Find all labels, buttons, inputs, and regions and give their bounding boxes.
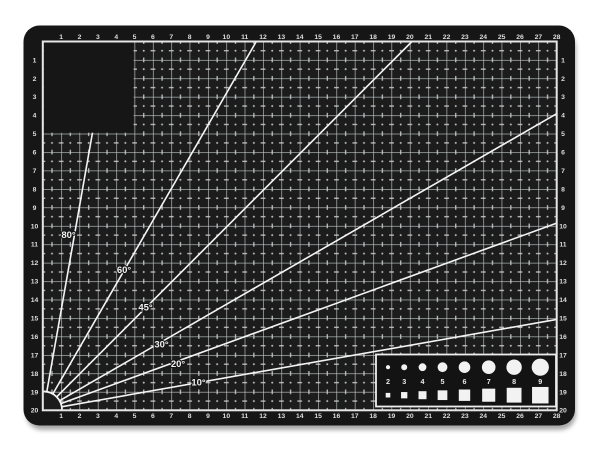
svg-text:12: 12 <box>31 260 39 267</box>
svg-text:7: 7 <box>487 377 491 386</box>
svg-text:15: 15 <box>31 316 39 323</box>
svg-text:4: 4 <box>421 377 425 386</box>
svg-text:27: 27 <box>535 34 543 41</box>
svg-text:3: 3 <box>402 377 406 386</box>
svg-text:14: 14 <box>296 34 304 41</box>
svg-text:17: 17 <box>559 352 567 359</box>
svg-text:20: 20 <box>406 413 414 420</box>
svg-text:23: 23 <box>461 34 469 41</box>
svg-text:27: 27 <box>535 413 543 420</box>
svg-text:16: 16 <box>559 334 567 341</box>
svg-text:6: 6 <box>151 413 155 420</box>
svg-text:2: 2 <box>78 34 82 41</box>
svg-text:9: 9 <box>561 205 565 212</box>
svg-text:8: 8 <box>512 377 516 386</box>
svg-text:28: 28 <box>553 34 561 41</box>
svg-text:10: 10 <box>31 223 39 230</box>
svg-text:10: 10 <box>223 413 231 420</box>
svg-text:19: 19 <box>559 389 567 396</box>
svg-text:2: 2 <box>561 76 565 83</box>
svg-text:12: 12 <box>259 34 267 41</box>
svg-text:4: 4 <box>33 113 37 120</box>
svg-text:7: 7 <box>169 413 173 420</box>
svg-text:11: 11 <box>241 34 248 41</box>
svg-text:18: 18 <box>31 371 39 378</box>
svg-text:21: 21 <box>424 413 432 420</box>
svg-text:5: 5 <box>133 413 137 420</box>
svg-text:17: 17 <box>351 413 359 420</box>
svg-text:18: 18 <box>369 413 377 420</box>
svg-text:11: 11 <box>31 242 38 249</box>
svg-text:13: 13 <box>278 34 286 41</box>
svg-text:20: 20 <box>559 408 567 415</box>
svg-text:21: 21 <box>424 34 432 41</box>
svg-text:11: 11 <box>559 242 566 249</box>
svg-text:8: 8 <box>188 34 192 41</box>
svg-text:25: 25 <box>498 413 506 420</box>
svg-text:17: 17 <box>351 34 359 41</box>
svg-text:6: 6 <box>33 150 37 157</box>
svg-text:19: 19 <box>388 413 396 420</box>
svg-text:30°: 30° <box>154 340 169 351</box>
svg-text:4: 4 <box>561 113 565 120</box>
svg-text:6: 6 <box>463 377 467 386</box>
svg-text:8: 8 <box>188 413 192 420</box>
svg-text:23: 23 <box>461 413 469 420</box>
svg-text:16: 16 <box>333 34 341 41</box>
svg-text:6: 6 <box>561 150 565 157</box>
svg-text:5: 5 <box>33 131 37 138</box>
svg-text:14: 14 <box>559 297 567 304</box>
svg-text:24: 24 <box>480 413 488 420</box>
svg-text:19: 19 <box>31 389 39 396</box>
svg-text:20: 20 <box>31 408 39 415</box>
svg-text:18: 18 <box>369 34 377 41</box>
svg-text:8: 8 <box>561 186 565 193</box>
svg-text:9: 9 <box>33 205 37 212</box>
svg-text:6: 6 <box>151 34 155 41</box>
svg-text:16: 16 <box>31 334 39 341</box>
svg-text:13: 13 <box>31 279 39 286</box>
svg-text:19: 19 <box>388 34 396 41</box>
svg-text:60°: 60° <box>117 265 132 276</box>
svg-text:20: 20 <box>406 34 414 41</box>
svg-text:3: 3 <box>96 34 100 41</box>
svg-text:20°: 20° <box>171 359 186 370</box>
svg-text:22: 22 <box>443 413 451 420</box>
svg-text:16: 16 <box>333 413 341 420</box>
svg-text:7: 7 <box>561 168 565 175</box>
svg-text:10: 10 <box>223 34 231 41</box>
svg-text:1: 1 <box>59 34 63 41</box>
svg-text:17: 17 <box>31 352 39 359</box>
svg-text:26: 26 <box>516 413 524 420</box>
svg-text:14: 14 <box>31 297 39 304</box>
svg-text:10: 10 <box>559 223 567 230</box>
svg-text:1: 1 <box>561 57 565 64</box>
svg-text:11: 11 <box>241 413 248 420</box>
svg-text:15: 15 <box>314 413 322 420</box>
svg-text:15: 15 <box>559 316 567 323</box>
svg-text:12: 12 <box>559 260 567 267</box>
svg-text:4: 4 <box>114 34 118 41</box>
svg-text:3: 3 <box>33 94 37 101</box>
svg-text:24: 24 <box>480 34 488 41</box>
svg-text:3: 3 <box>561 94 565 101</box>
svg-text:22: 22 <box>443 34 451 41</box>
svg-text:18: 18 <box>559 371 567 378</box>
svg-text:9: 9 <box>538 377 542 386</box>
svg-text:14: 14 <box>296 413 304 420</box>
svg-text:7: 7 <box>169 34 173 41</box>
svg-text:9: 9 <box>206 34 210 41</box>
svg-text:13: 13 <box>278 413 286 420</box>
svg-text:12: 12 <box>259 413 267 420</box>
svg-text:3: 3 <box>96 413 100 420</box>
svg-text:9: 9 <box>206 413 210 420</box>
svg-text:5: 5 <box>561 131 565 138</box>
svg-text:2: 2 <box>386 377 390 386</box>
svg-text:5: 5 <box>133 34 137 41</box>
svg-text:26: 26 <box>516 34 524 41</box>
svg-text:80°: 80° <box>61 230 76 241</box>
svg-text:7: 7 <box>33 168 37 175</box>
svg-text:1: 1 <box>59 413 63 420</box>
svg-text:4: 4 <box>114 413 118 420</box>
svg-text:15: 15 <box>314 34 322 41</box>
svg-text:25: 25 <box>498 34 506 41</box>
svg-text:8: 8 <box>33 186 37 193</box>
svg-text:1: 1 <box>33 57 37 64</box>
svg-text:2: 2 <box>78 413 82 420</box>
svg-text:45°: 45° <box>138 303 153 314</box>
svg-text:13: 13 <box>559 279 567 286</box>
svg-text:10°: 10° <box>191 378 206 389</box>
svg-text:2: 2 <box>33 76 37 83</box>
svg-text:5: 5 <box>441 377 445 386</box>
